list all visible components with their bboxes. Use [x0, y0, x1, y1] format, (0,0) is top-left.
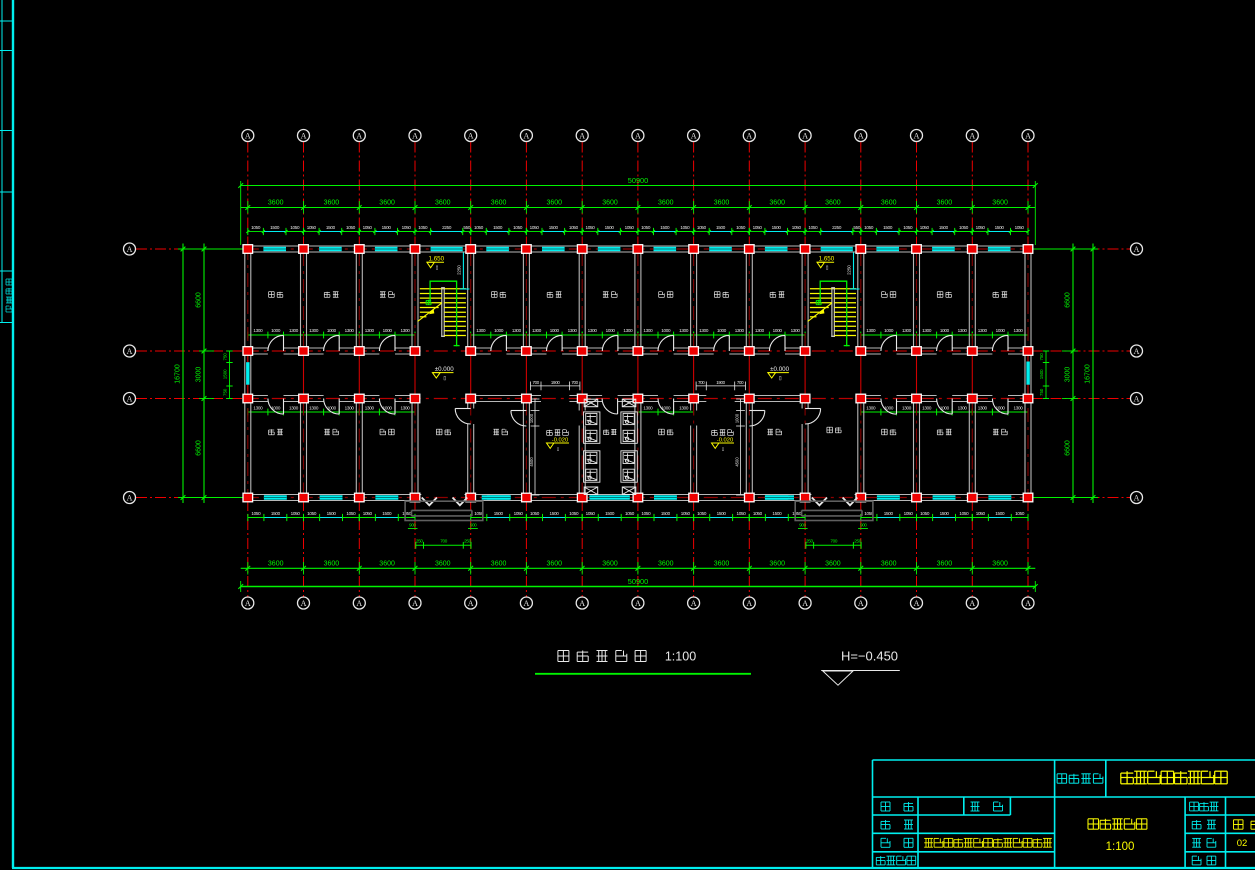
svg-text:1300: 1300 — [978, 328, 988, 333]
svg-text:1500: 1500 — [494, 511, 504, 516]
svg-text:700: 700 — [532, 380, 539, 385]
svg-text:3600: 3600 — [435, 200, 451, 207]
svg-text:1050: 1050 — [753, 511, 763, 516]
svg-text:1300: 1300 — [365, 328, 375, 333]
svg-text:1050: 1050 — [625, 511, 635, 516]
svg-text:1050: 1050 — [1015, 511, 1025, 516]
svg-text:1050: 1050 — [290, 225, 300, 230]
svg-text:1300: 1300 — [643, 406, 653, 411]
svg-text:1300: 1300 — [568, 328, 578, 333]
svg-text:1050: 1050 — [307, 511, 317, 516]
svg-text:3600: 3600 — [881, 561, 897, 568]
svg-text:3600: 3600 — [769, 561, 785, 568]
svg-text:1300: 1300 — [679, 406, 689, 411]
svg-text:1300: 1300 — [902, 328, 912, 333]
svg-text:16700: 16700 — [1085, 364, 1092, 384]
svg-text:A: A — [1134, 245, 1140, 254]
svg-text:A: A — [969, 599, 975, 608]
svg-text:1000: 1000 — [884, 328, 894, 333]
svg-text:50900: 50900 — [628, 176, 649, 185]
svg-text:1500: 1500 — [661, 511, 671, 516]
svg-text:±0.000: ±0.000 — [435, 366, 454, 373]
svg-text:900: 900 — [409, 522, 416, 527]
svg-text:1050: 1050 — [291, 511, 301, 516]
svg-text:▯: ▯ — [443, 376, 446, 382]
svg-text:1050: 1050 — [959, 225, 969, 230]
svg-text:A: A — [914, 599, 920, 608]
svg-text:1900: 1900 — [551, 380, 560, 385]
svg-text:1500: 1500 — [939, 225, 949, 230]
svg-text:▯: ▯ — [826, 265, 829, 271]
svg-text:1300: 1300 — [902, 406, 912, 411]
svg-text:1050: 1050 — [585, 225, 595, 230]
svg-text:1300: 1300 — [588, 328, 598, 333]
svg-text:2250: 2250 — [832, 225, 842, 230]
svg-text:1050: 1050 — [959, 511, 969, 516]
svg-text:6600: 6600 — [196, 292, 203, 308]
svg-text:250: 250 — [854, 539, 862, 544]
svg-text:1000: 1000 — [735, 413, 740, 423]
svg-text:1:100: 1:100 — [665, 649, 696, 663]
svg-text:1000: 1000 — [383, 328, 393, 333]
svg-text:A: A — [245, 132, 251, 141]
svg-text:1500: 1500 — [772, 511, 782, 516]
svg-text:1050: 1050 — [641, 225, 651, 230]
svg-text:1300: 1300 — [1013, 406, 1023, 411]
svg-text:3600: 3600 — [602, 200, 618, 207]
svg-text:6600: 6600 — [1065, 292, 1072, 308]
svg-text:3600: 3600 — [268, 561, 284, 568]
svg-text:3600: 3600 — [547, 561, 563, 568]
svg-text:1500: 1500 — [382, 511, 392, 516]
svg-text:1500: 1500 — [270, 225, 280, 230]
svg-text:1050: 1050 — [808, 225, 818, 230]
svg-text:1500: 1500 — [223, 369, 228, 379]
svg-text:A: A — [127, 395, 133, 404]
svg-text:1050: 1050 — [792, 511, 802, 516]
svg-text:3600: 3600 — [324, 561, 340, 568]
svg-text:A: A — [802, 132, 808, 141]
svg-text:1:100: 1:100 — [1106, 841, 1135, 853]
svg-text:1050: 1050 — [307, 225, 317, 230]
svg-text:6600: 6600 — [196, 440, 203, 456]
svg-text:1300: 1300 — [345, 328, 355, 333]
svg-text:1050: 1050 — [920, 511, 930, 516]
svg-text:A: A — [579, 132, 585, 141]
svg-text:3600: 3600 — [435, 561, 451, 568]
svg-text:1300: 1300 — [922, 328, 932, 333]
svg-text:1300: 1300 — [623, 328, 633, 333]
svg-text:750: 750 — [223, 353, 228, 361]
svg-text:550: 550 — [853, 225, 861, 230]
svg-text:1300: 1300 — [345, 406, 355, 411]
svg-text:1300: 1300 — [699, 328, 709, 333]
svg-text:1500: 1500 — [716, 225, 726, 230]
svg-text:1900: 1900 — [716, 380, 725, 385]
svg-text:1050: 1050 — [586, 511, 596, 516]
svg-text:1300: 1300 — [735, 328, 745, 333]
svg-text:1050: 1050 — [681, 511, 691, 516]
svg-text:A: A — [468, 599, 474, 608]
svg-text:3600: 3600 — [602, 561, 618, 568]
svg-text:1050: 1050 — [569, 511, 579, 516]
svg-text:3600: 3600 — [714, 200, 730, 207]
svg-text:6600: 6600 — [1065, 440, 1072, 456]
svg-text:A: A — [412, 132, 418, 141]
svg-text:A: A — [356, 132, 362, 141]
svg-text:1000: 1000 — [494, 328, 504, 333]
svg-text:3600: 3600 — [825, 561, 841, 568]
svg-text:750: 750 — [223, 388, 228, 396]
svg-text:1300: 1300 — [866, 406, 876, 411]
svg-text:1000: 1000 — [773, 328, 783, 333]
svg-text:▯: ▯ — [436, 265, 439, 271]
svg-text:1050: 1050 — [625, 225, 635, 230]
svg-text:700: 700 — [571, 380, 578, 385]
svg-text:1050: 1050 — [736, 511, 746, 516]
svg-text:1050: 1050 — [697, 225, 707, 230]
svg-text:1300: 1300 — [400, 406, 410, 411]
svg-text:1050: 1050 — [569, 225, 579, 230]
svg-text:250: 250 — [806, 539, 814, 544]
svg-text:1300: 1300 — [958, 328, 968, 333]
svg-text:A: A — [746, 132, 752, 141]
svg-text:1500: 1500 — [995, 225, 1005, 230]
svg-text:900: 900 — [860, 522, 867, 527]
svg-text:1000: 1000 — [327, 328, 337, 333]
svg-text:1300: 1300 — [922, 406, 932, 411]
svg-text:A: A — [524, 132, 530, 141]
svg-text:A: A — [579, 599, 585, 608]
svg-text:1050: 1050 — [904, 511, 914, 516]
svg-text:750: 750 — [1039, 388, 1044, 396]
svg-text:±0.000: ±0.000 — [770, 366, 789, 373]
svg-text:1050: 1050 — [346, 511, 356, 516]
svg-text:1300: 1300 — [289, 328, 299, 333]
svg-text:700: 700 — [737, 380, 744, 385]
svg-text:700: 700 — [830, 539, 838, 544]
svg-text:2250: 2250 — [442, 225, 452, 230]
svg-text:1300: 1300 — [512, 328, 522, 333]
svg-text:3000: 3000 — [196, 367, 203, 383]
svg-text:1300: 1300 — [978, 406, 988, 411]
svg-text:1050: 1050 — [1015, 225, 1025, 230]
svg-text:1050: 1050 — [753, 225, 763, 230]
svg-text:A: A — [969, 132, 975, 141]
svg-text:1050: 1050 — [418, 225, 428, 230]
svg-text:1500: 1500 — [940, 511, 950, 516]
svg-text:900: 900 — [470, 522, 477, 527]
svg-text:3600: 3600 — [324, 200, 340, 207]
svg-text:3600: 3600 — [268, 200, 284, 207]
svg-text:1000: 1000 — [529, 413, 534, 423]
svg-text:3600: 3600 — [379, 200, 395, 207]
svg-text:1500: 1500 — [605, 225, 615, 230]
svg-text:1300: 1300 — [253, 328, 263, 333]
svg-text:1300: 1300 — [866, 328, 876, 333]
svg-text:1050: 1050 — [346, 225, 356, 230]
svg-text:3000: 3000 — [1065, 367, 1072, 383]
svg-text:1500: 1500 — [271, 511, 281, 516]
svg-text:1050: 1050 — [402, 225, 412, 230]
svg-text:A: A — [858, 132, 864, 141]
svg-text:1500: 1500 — [1039, 369, 1044, 379]
svg-text:A: A — [691, 132, 697, 141]
svg-text:1000: 1000 — [550, 328, 560, 333]
svg-text:A: A — [127, 245, 133, 254]
svg-text:1050: 1050 — [976, 225, 986, 230]
svg-text:1500: 1500 — [660, 225, 670, 230]
svg-text:1.650: 1.650 — [429, 256, 445, 263]
svg-text:A: A — [691, 599, 697, 608]
svg-text:2250: 2250 — [847, 265, 852, 275]
svg-text:700: 700 — [698, 380, 705, 385]
svg-text:A: A — [524, 599, 530, 608]
svg-text:A: A — [127, 347, 133, 356]
svg-text:1000: 1000 — [996, 328, 1006, 333]
svg-text:50900: 50900 — [628, 577, 649, 586]
svg-text:4500: 4500 — [735, 457, 740, 467]
svg-text:1500: 1500 — [772, 225, 782, 230]
svg-text:1050: 1050 — [363, 511, 373, 516]
svg-text:1300: 1300 — [958, 406, 968, 411]
svg-text:1050: 1050 — [530, 225, 540, 230]
svg-text:1300: 1300 — [309, 406, 319, 411]
svg-text:3600: 3600 — [992, 200, 1008, 207]
svg-text:A: A — [1134, 494, 1140, 503]
svg-text:1500: 1500 — [549, 225, 559, 230]
svg-text:H=−0.450: H=−0.450 — [841, 648, 898, 663]
svg-text:4500: 4500 — [529, 457, 534, 467]
svg-text:A: A — [1025, 132, 1031, 141]
svg-text:A: A — [1134, 395, 1140, 404]
svg-text:1000: 1000 — [271, 328, 281, 333]
svg-text:700: 700 — [440, 539, 448, 544]
svg-text:A: A — [914, 132, 920, 141]
svg-text:1500: 1500 — [883, 225, 893, 230]
svg-text:1500: 1500 — [605, 511, 615, 516]
svg-text:1050: 1050 — [530, 511, 540, 516]
svg-text:A: A — [746, 599, 752, 608]
svg-text:1000: 1000 — [661, 328, 671, 333]
svg-text:1050: 1050 — [697, 511, 707, 516]
svg-text:1050: 1050 — [976, 511, 986, 516]
svg-text:1050: 1050 — [680, 225, 690, 230]
svg-text:1050: 1050 — [641, 511, 651, 516]
svg-text:250: 250 — [464, 539, 472, 544]
svg-text:1000: 1000 — [606, 328, 616, 333]
svg-text:3600: 3600 — [547, 200, 563, 207]
svg-text:550: 550 — [463, 225, 471, 230]
svg-text:A: A — [245, 599, 251, 608]
svg-text:1300: 1300 — [679, 328, 689, 333]
svg-text:2250: 2250 — [456, 265, 461, 275]
svg-text:1050: 1050 — [363, 225, 373, 230]
svg-text:A: A — [635, 132, 641, 141]
svg-text:1050: 1050 — [251, 511, 261, 516]
svg-text:3600: 3600 — [992, 561, 1008, 568]
svg-text:1300: 1300 — [253, 406, 263, 411]
svg-text:1300: 1300 — [289, 406, 299, 411]
svg-text:A: A — [412, 599, 418, 608]
svg-text:1300: 1300 — [365, 406, 375, 411]
svg-text:1500: 1500 — [549, 511, 559, 516]
svg-text:1300: 1300 — [643, 328, 653, 333]
svg-text:1000: 1000 — [717, 328, 727, 333]
svg-text:900: 900 — [799, 522, 806, 527]
svg-text:3600: 3600 — [881, 200, 897, 207]
svg-text:A: A — [468, 132, 474, 141]
svg-text:3600: 3600 — [769, 200, 785, 207]
svg-text:3600: 3600 — [937, 561, 953, 568]
svg-text:1050: 1050 — [792, 225, 802, 230]
svg-text:1500: 1500 — [326, 225, 336, 230]
svg-text:1300: 1300 — [755, 328, 765, 333]
svg-text:1.650: 1.650 — [819, 256, 835, 263]
svg-text:A: A — [1134, 347, 1140, 356]
svg-text:A: A — [802, 599, 808, 608]
svg-text:A: A — [858, 599, 864, 608]
svg-text:1500: 1500 — [995, 511, 1005, 516]
svg-text:1050: 1050 — [514, 511, 524, 516]
svg-text:250: 250 — [416, 539, 424, 544]
svg-text:750: 750 — [1039, 353, 1044, 361]
svg-text:1050: 1050 — [864, 225, 874, 230]
svg-text:A: A — [301, 599, 307, 608]
svg-text:A: A — [635, 599, 641, 608]
svg-text:1050: 1050 — [920, 225, 930, 230]
svg-text:3600: 3600 — [937, 200, 953, 207]
svg-text:3600: 3600 — [658, 200, 674, 207]
svg-text:1300: 1300 — [400, 328, 410, 333]
svg-text:A: A — [301, 132, 307, 141]
svg-text:1500: 1500 — [884, 511, 894, 516]
svg-text:A: A — [127, 494, 133, 503]
svg-text:▯: ▯ — [779, 376, 782, 382]
svg-text:1050: 1050 — [736, 225, 746, 230]
svg-text:1500: 1500 — [382, 225, 392, 230]
svg-text:1050: 1050 — [251, 225, 261, 230]
svg-text:1300: 1300 — [532, 328, 542, 333]
svg-text:3600: 3600 — [658, 561, 674, 568]
svg-text:1300: 1300 — [791, 328, 801, 333]
svg-text:3600: 3600 — [491, 561, 507, 568]
svg-text:3600: 3600 — [379, 561, 395, 568]
svg-text:3600: 3600 — [491, 200, 507, 207]
svg-text:1500: 1500 — [493, 225, 503, 230]
svg-text:1000: 1000 — [940, 328, 950, 333]
svg-text:1500: 1500 — [717, 511, 727, 516]
svg-text:A: A — [1025, 599, 1031, 608]
svg-text:1300: 1300 — [1013, 328, 1023, 333]
svg-text:1050: 1050 — [513, 225, 523, 230]
svg-text:3600: 3600 — [825, 200, 841, 207]
svg-text:1300: 1300 — [476, 328, 486, 333]
svg-text:A: A — [356, 599, 362, 608]
svg-text:1500: 1500 — [327, 511, 337, 516]
svg-text:1050: 1050 — [474, 225, 484, 230]
svg-text:16700: 16700 — [175, 364, 182, 384]
svg-text:3600: 3600 — [714, 561, 730, 568]
svg-text:02: 02 — [1237, 838, 1248, 849]
svg-text:1050: 1050 — [903, 225, 913, 230]
svg-text:1300: 1300 — [309, 328, 319, 333]
svg-text:1050: 1050 — [402, 511, 412, 516]
